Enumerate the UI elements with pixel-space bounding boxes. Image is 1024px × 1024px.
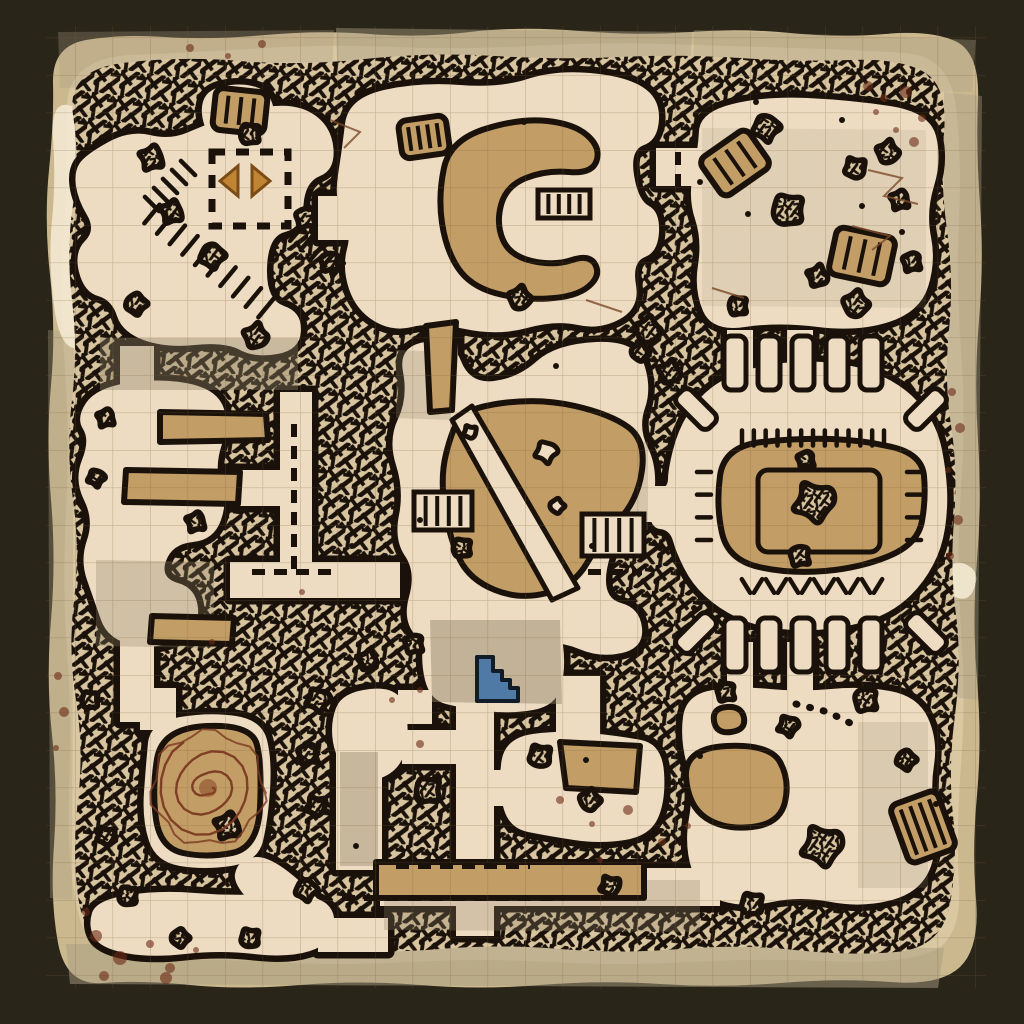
stone-dot-4 xyxy=(745,211,751,217)
ink-stain-1 xyxy=(863,81,873,91)
arena-pillar-8 xyxy=(792,618,814,672)
rubble-boulder-15 xyxy=(845,158,865,178)
ink-stain-9 xyxy=(955,423,965,433)
arena-pillar-4 xyxy=(826,336,848,390)
ink-stain-34 xyxy=(258,40,266,48)
ink-stain-14 xyxy=(113,951,127,965)
ink-stain-18 xyxy=(82,908,90,916)
ink-stain-36 xyxy=(209,639,215,645)
ink-stain-5 xyxy=(893,127,899,133)
arena-pillar-10 xyxy=(860,618,882,672)
rubble-boulder-28 xyxy=(186,512,205,532)
rubble-boulder-39 xyxy=(416,778,439,801)
arena-pillar-6 xyxy=(724,618,746,672)
stone-dot-8 xyxy=(349,543,355,549)
rubble-boulder-30 xyxy=(298,744,318,764)
ink-stain-31 xyxy=(53,745,59,751)
rubble-boulder-41 xyxy=(600,876,620,895)
rubble-boulder-49 xyxy=(358,649,377,669)
rubble-boulder-22 xyxy=(453,539,470,556)
stone-dot-6 xyxy=(899,229,905,235)
arena-pillar-7 xyxy=(758,618,780,672)
ink-stain-13 xyxy=(90,930,102,942)
ink-stain-30 xyxy=(59,707,69,717)
rubble-boulder-37 xyxy=(241,929,259,946)
stone-dot-19 xyxy=(697,753,703,759)
arena-pillar-9 xyxy=(826,618,848,672)
dungeon-map-canvas xyxy=(0,0,1024,1024)
rubble-boulder-20 xyxy=(902,253,920,272)
stone-dot-20 xyxy=(933,801,939,807)
ink-stain-8 xyxy=(948,388,956,396)
ink-stain-22 xyxy=(589,821,595,827)
ink-stain-12 xyxy=(946,552,954,560)
dungeon-map-screenshot xyxy=(0,0,1024,1024)
rubble-boulder-2 xyxy=(241,125,259,144)
rubble-boulder-43 xyxy=(742,894,763,914)
stone-dot-10 xyxy=(589,543,595,549)
ink-stain-37 xyxy=(417,687,423,693)
stone-dot-22 xyxy=(81,633,87,639)
ink-stain-29 xyxy=(54,672,62,680)
stone-dot-21 xyxy=(117,753,123,759)
ink-stain-17 xyxy=(165,963,175,973)
ink-stain-35 xyxy=(299,589,305,595)
ink-stain-21 xyxy=(556,796,564,804)
arena-pillar-1 xyxy=(724,336,746,390)
rubble-boulder-24 xyxy=(797,452,814,469)
ink-stain-7 xyxy=(873,109,879,115)
ink-stain-19 xyxy=(193,947,199,953)
rubble-boulder-31 xyxy=(306,796,325,815)
gate-rock-top-center xyxy=(398,115,451,159)
rubble-boulder-36 xyxy=(82,692,98,708)
rubble-boulder-10 xyxy=(631,343,649,361)
stone-dot-14 xyxy=(553,363,559,369)
stone-dot-9 xyxy=(365,627,371,633)
ink-stain-33 xyxy=(225,53,231,59)
stone-dot-1 xyxy=(753,99,759,105)
stone-dot-12 xyxy=(247,389,253,395)
arena-pillar-2 xyxy=(758,336,780,390)
stone-dot-15 xyxy=(417,517,423,523)
ink-stain-28 xyxy=(389,697,395,703)
rubble-boulder-14 xyxy=(773,195,802,224)
stone-dot-16 xyxy=(215,687,221,693)
pebble-2 xyxy=(550,498,565,513)
rubble-boulder-50 xyxy=(405,635,423,653)
pebble-3 xyxy=(464,426,477,439)
ink-stain-23 xyxy=(623,805,633,815)
rubble-boulder-40 xyxy=(529,745,550,766)
ink-stain-11 xyxy=(953,515,963,525)
ink-stain-6 xyxy=(909,137,919,147)
stone-dot-3 xyxy=(697,179,703,185)
rubble-boulder-26 xyxy=(97,409,114,427)
ink-stain-20 xyxy=(160,972,172,984)
rubble-boulder-25 xyxy=(790,547,809,566)
rubble-boulder-44 xyxy=(855,689,877,711)
ink-stain-26 xyxy=(685,823,691,829)
ink-stain-27 xyxy=(416,740,424,748)
stair-ledge-center-west xyxy=(414,492,472,530)
rubble-boulder-21 xyxy=(729,297,746,314)
stair-ledge-top xyxy=(538,190,590,218)
rubble-boulder-1 xyxy=(139,145,163,170)
ink-stain-25 xyxy=(597,857,603,863)
rubble-boulder-38 xyxy=(171,929,190,947)
stone-dot-13 xyxy=(327,449,333,455)
ink-stain-2 xyxy=(880,94,888,102)
arena-pillar-3 xyxy=(792,336,814,390)
ink-stain-16 xyxy=(99,971,109,981)
stair-ledge-center-east xyxy=(582,514,644,556)
ink-stain-4 xyxy=(918,114,926,122)
stone-dot-11 xyxy=(657,545,663,551)
stone-dot-17 xyxy=(353,843,359,849)
ink-stain-24 xyxy=(658,838,666,846)
ink-stain-10 xyxy=(945,467,951,473)
stone-dot-2 xyxy=(839,117,845,123)
ink-stain-3 xyxy=(900,86,912,98)
rubble-boulder-34 xyxy=(97,827,115,845)
stone-dot-18 xyxy=(583,757,589,763)
rubble-boulder-45 xyxy=(717,683,735,701)
ink-stain-32 xyxy=(186,44,194,52)
arena-pillar-5 xyxy=(860,336,882,390)
ink-stain-15 xyxy=(146,940,154,948)
stone-dot-24 xyxy=(691,605,697,611)
stone-dot-23 xyxy=(645,407,651,413)
rubble-boulder-33 xyxy=(119,887,137,904)
rubble-boulder-7 xyxy=(296,208,315,228)
stone-dot-5 xyxy=(859,203,865,209)
stone-dot-7 xyxy=(521,119,527,125)
